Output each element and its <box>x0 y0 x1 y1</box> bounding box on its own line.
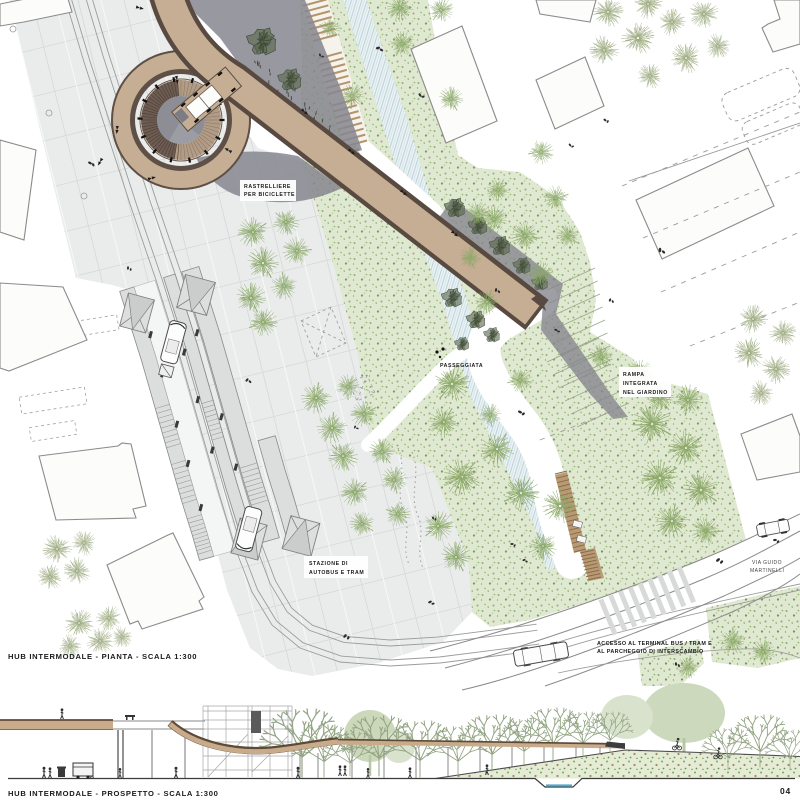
svg-text:STAZIONE DI: STAZIONE DI <box>309 561 348 567</box>
svg-text:RASTRELLIERE: RASTRELLIERE <box>244 184 291 190</box>
svg-text:PASSEGGIATA: PASSEGGIATA <box>440 363 483 369</box>
svg-text:AL PARCHEGGIO DI INTERSCAMBIO: AL PARCHEGGIO DI INTERSCAMBIO <box>597 649 704 655</box>
svg-text:HUB INTERMODALE - PIANTA - SCA: HUB INTERMODALE - PIANTA - SCALA 1:300 <box>8 652 197 661</box>
svg-text:NEL GIARDINO: NEL GIARDINO <box>623 390 668 396</box>
svg-text:RAMPA: RAMPA <box>623 372 645 378</box>
svg-text:INTEGRATA: INTEGRATA <box>623 381 658 387</box>
svg-text:AUTOBUS E TRAM: AUTOBUS E TRAM <box>309 570 364 576</box>
svg-text:VIA GUIDO: VIA GUIDO <box>752 560 782 566</box>
svg-text:MARTINELLI: MARTINELLI <box>750 568 784 574</box>
svg-text:HUB INTERMODALE - PROSPETTO -: HUB INTERMODALE - PROSPETTO - SCALA 1:30… <box>8 789 219 798</box>
svg-text:04: 04 <box>780 786 791 796</box>
svg-text:PER BICICLETTE: PER BICICLETTE <box>244 192 295 198</box>
svg-text:ACCESSO AL TERMINAL BUS / TRAM: ACCESSO AL TERMINAL BUS / TRAM E <box>597 641 712 647</box>
